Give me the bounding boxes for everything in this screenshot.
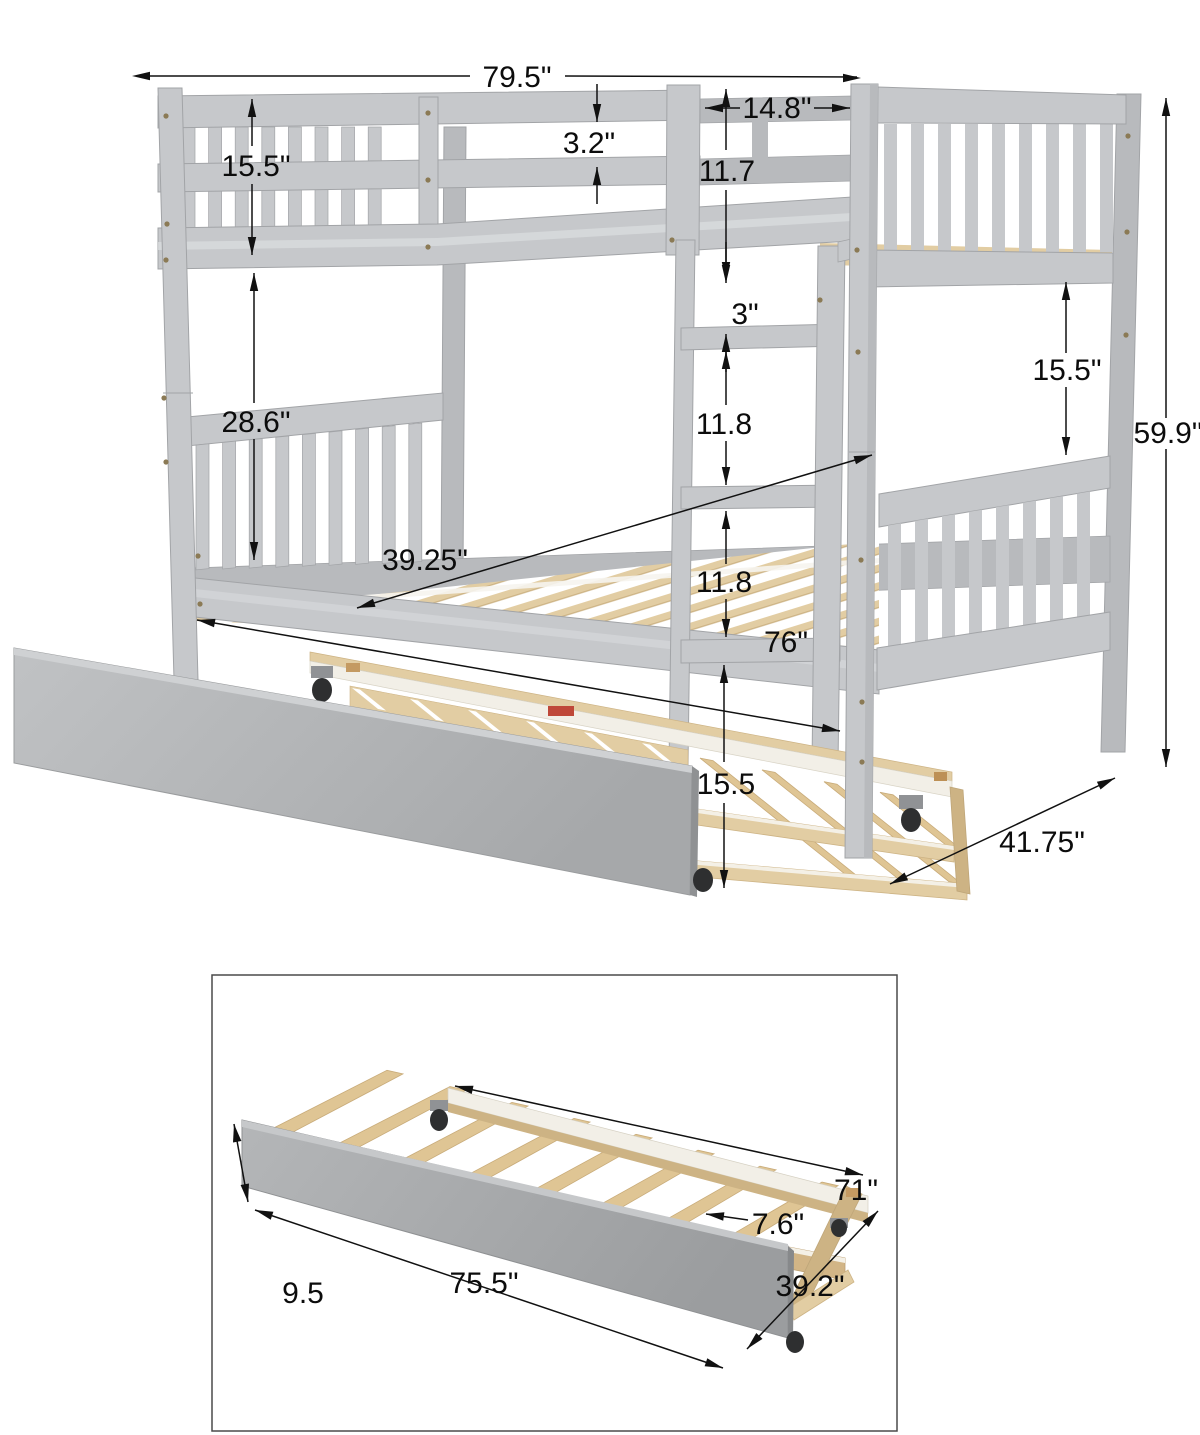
svg-text:15.5: 15.5 xyxy=(697,768,755,801)
svg-text:79.5": 79.5" xyxy=(482,61,551,94)
svg-text:15.5": 15.5" xyxy=(221,150,290,183)
svg-text:75.5": 75.5" xyxy=(449,1267,518,1300)
svg-text:11.8: 11.8 xyxy=(696,566,752,599)
svg-text:3.2": 3.2" xyxy=(563,127,615,160)
svg-text:14.8": 14.8" xyxy=(742,92,811,125)
svg-text:76": 76" xyxy=(764,626,808,659)
svg-text:3": 3" xyxy=(731,298,758,331)
svg-text:71": 71" xyxy=(834,1174,878,1207)
svg-text:39.2": 39.2" xyxy=(775,1270,844,1303)
svg-text:15.5": 15.5" xyxy=(1032,354,1101,387)
svg-text:59.9": 59.9" xyxy=(1133,417,1200,450)
svg-text:7.6": 7.6" xyxy=(752,1208,804,1241)
svg-text:11.7: 11.7 xyxy=(699,155,755,188)
svg-text:9.5: 9.5 xyxy=(282,1277,324,1310)
svg-text:41.75": 41.75" xyxy=(999,826,1085,859)
svg-text:28.6": 28.6" xyxy=(221,406,290,439)
svg-text:39.25": 39.25" xyxy=(382,544,468,577)
svg-text:11.8: 11.8 xyxy=(696,408,752,441)
